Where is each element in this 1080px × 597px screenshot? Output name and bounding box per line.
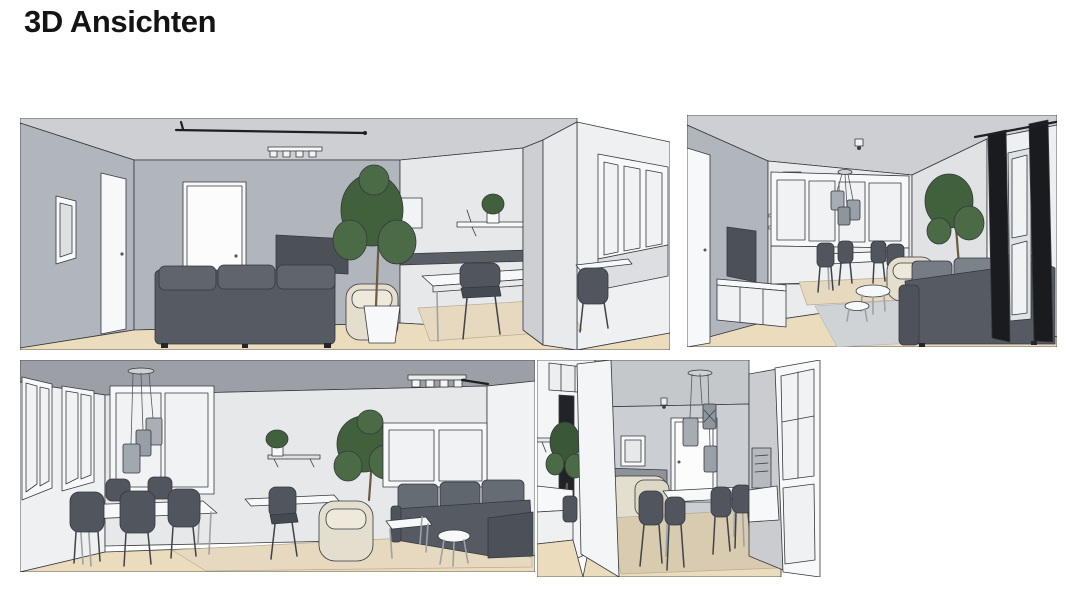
- view-dining-area-1: [20, 360, 535, 572]
- page-title: 3D Ansichten: [24, 4, 216, 40]
- dining-area-1-image: [20, 360, 535, 572]
- back-window-2: [383, 423, 487, 487]
- window-right: [1008, 148, 1031, 321]
- wall-mirror: [56, 196, 76, 264]
- partition-wall: [523, 122, 577, 350]
- dining-area-2-image: [537, 360, 822, 577]
- picture-frame: [621, 436, 645, 466]
- sofa: [155, 265, 335, 348]
- door-left: [687, 148, 710, 347]
- living-room-2-image: [687, 115, 1057, 347]
- armchair: [319, 501, 373, 561]
- corner-windows: [598, 154, 668, 290]
- door-left: [101, 173, 126, 334]
- living-room-1-image: [20, 118, 670, 350]
- glass-door: [775, 360, 820, 577]
- view-living-room-2: [687, 115, 1057, 347]
- tv-screen: [727, 227, 756, 282]
- corner-sofa: [899, 255, 1055, 347]
- page: 3D Ansichten: [0, 0, 1080, 597]
- view-dining-area-2: [537, 360, 822, 577]
- sideboard: [717, 279, 786, 327]
- view-living-room-1: [20, 118, 670, 350]
